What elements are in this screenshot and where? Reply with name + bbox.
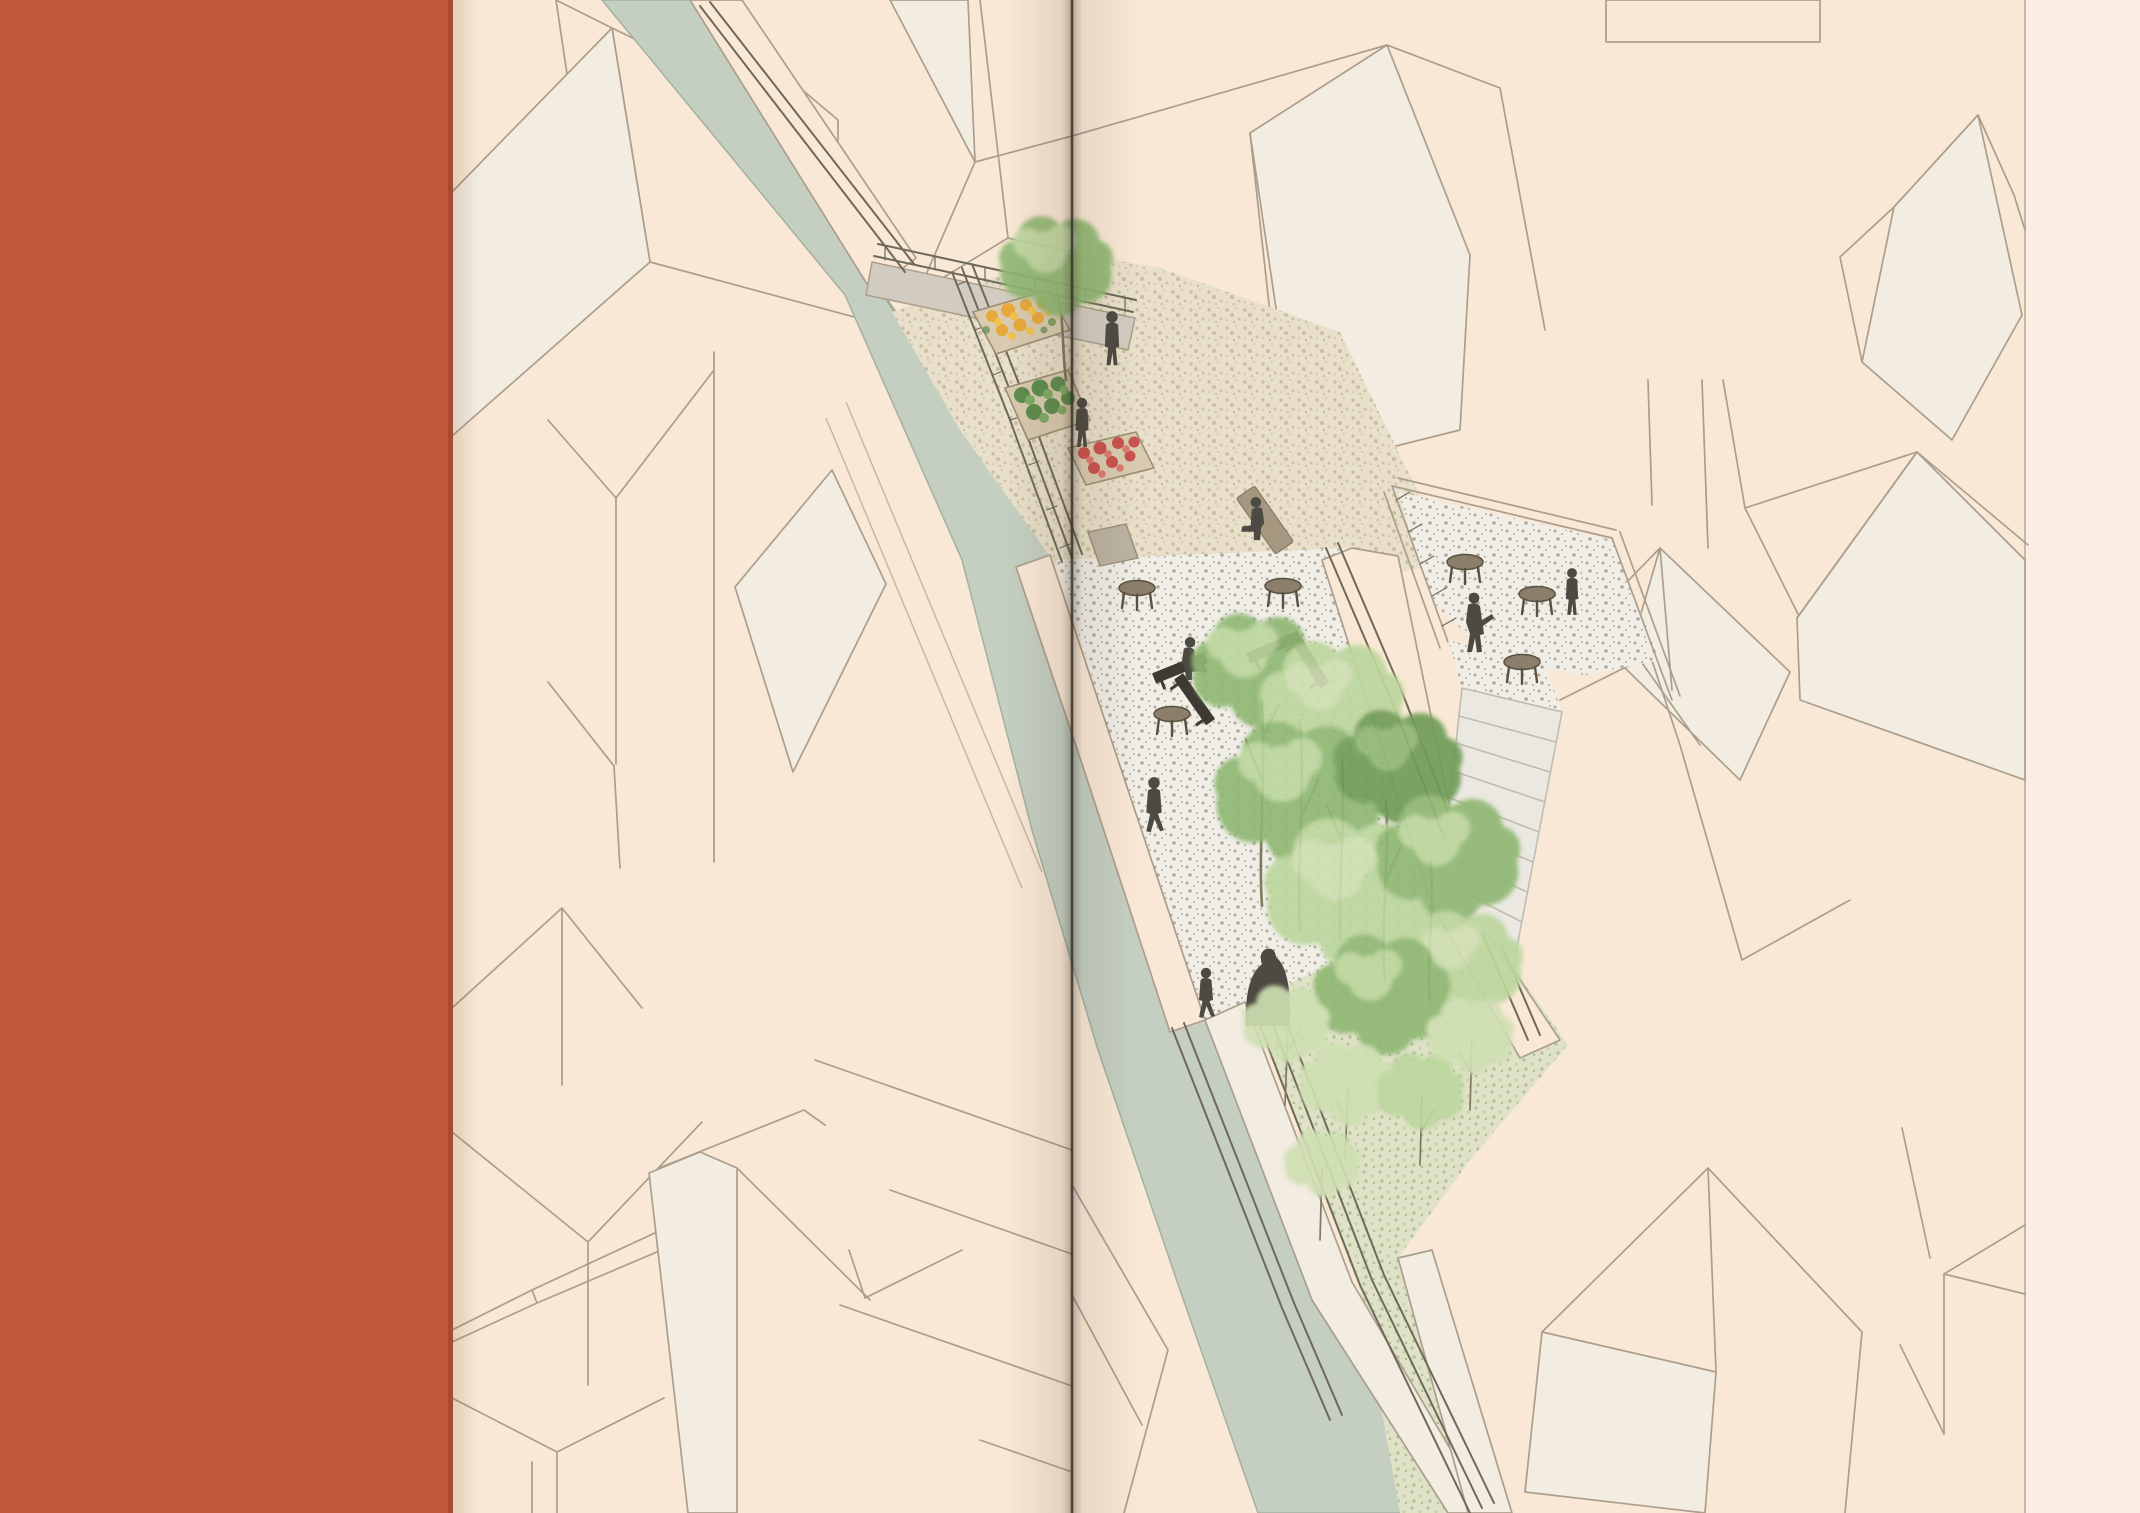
book-spread-photo (0, 0, 2140, 1513)
band-edge (448, 0, 453, 1513)
illustration-canvas (0, 0, 2140, 1513)
terracotta-band (0, 0, 479, 1513)
spine-fold (1007, 0, 1137, 1513)
right-page-margin (2025, 0, 2140, 1513)
band-fill (0, 0, 452, 1513)
band-shadow (453, 0, 479, 1513)
